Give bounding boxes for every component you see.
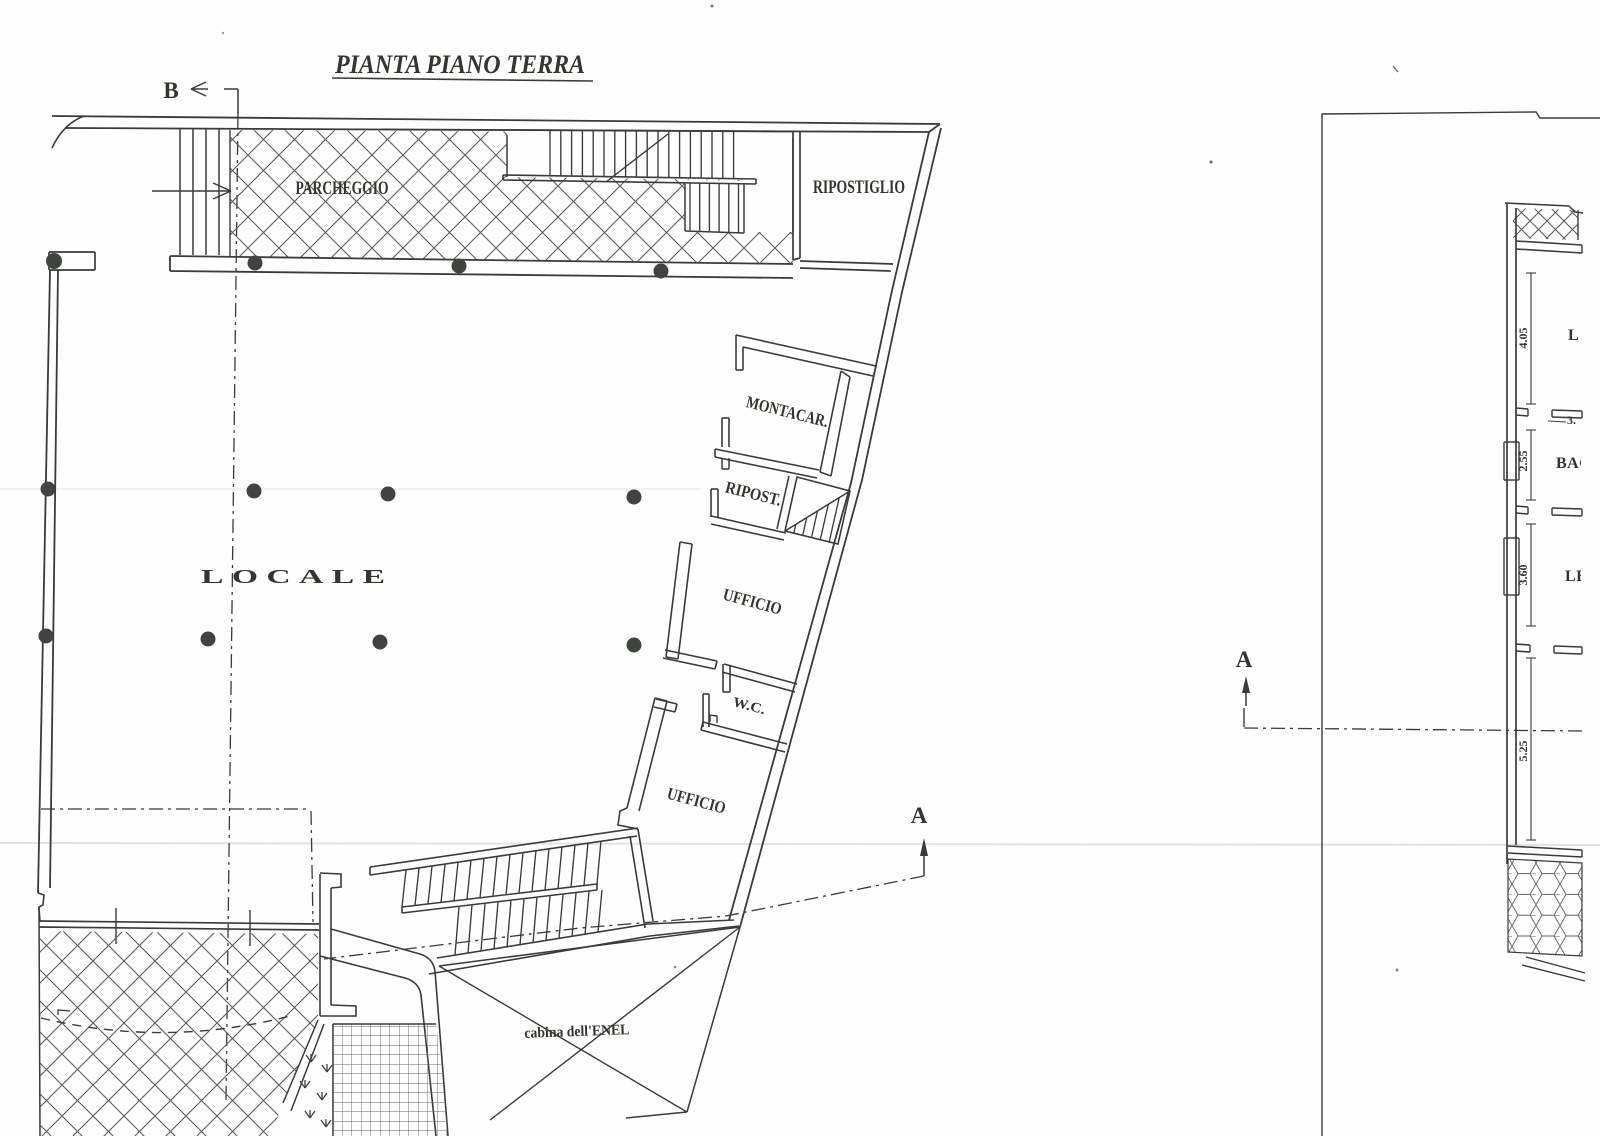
svg-text:3.: 3. [1567, 413, 1576, 427]
svg-text:PIANTA PIANO TERRA: PIANTA PIANO TERRA [334, 50, 585, 79]
svg-text:PARCHEGGIO: PARCHEGGIO [296, 178, 389, 199]
svg-text:3.60: 3.60 [1516, 565, 1530, 586]
svg-text:L O C A L E: L O C A L E [201, 566, 385, 588]
svg-text:A: A [911, 803, 928, 828]
svg-text:A: A [1236, 647, 1253, 672]
svg-text:B: B [163, 78, 178, 103]
svg-text:L: L [1568, 327, 1579, 344]
svg-text:5.25: 5.25 [1516, 741, 1530, 762]
svg-text:RIPOSTIGLIO: RIPOSTIGLIO [813, 177, 905, 198]
svg-text:4.05: 4.05 [1516, 328, 1530, 349]
svg-text:2.55: 2.55 [1516, 451, 1530, 472]
